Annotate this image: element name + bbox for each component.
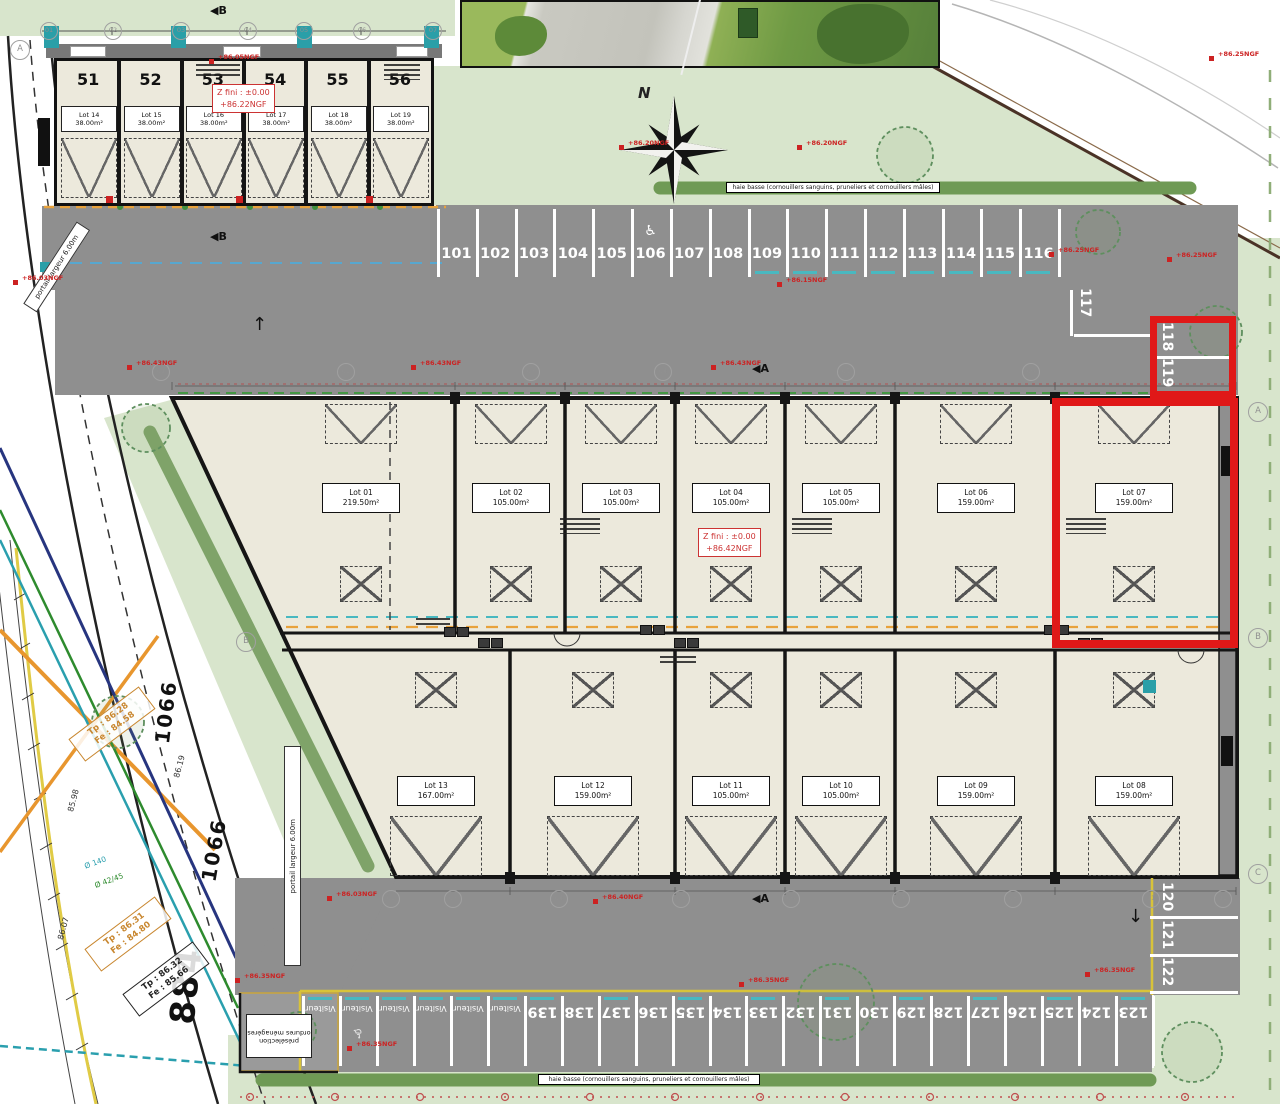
stall-number: 120 [1160, 882, 1174, 916]
garage-lot-name: Lot 15 [125, 111, 179, 119]
garage-door-swing [795, 816, 887, 876]
highlight-frame-lot-07 [1052, 398, 1238, 648]
parking-bumper [419, 997, 443, 1000]
garage-door-swing [124, 138, 180, 198]
lot-area: 105.00m² [693, 791, 769, 801]
garage-door-swing [547, 816, 639, 876]
lot-entry-door [805, 404, 877, 444]
lot-label: Lot 01219.50m² [322, 483, 400, 513]
plan-note-text [384, 64, 420, 80]
ngf-annotation-dot [13, 280, 18, 285]
stall-number: 108 [709, 247, 748, 262]
render-photo-inset [460, 0, 940, 68]
hedge-banner-top: haie basse (cornouillers sanguins, prune… [726, 182, 940, 193]
skylight-mark [955, 566, 997, 602]
garage-lot-area: 38.00m² [187, 119, 241, 127]
waste-area-label-text: présélection ordures ménagères [247, 1028, 311, 1045]
ngf-annotation: +86.35NGF [244, 972, 285, 980]
garage-door-swing [186, 138, 242, 198]
grid-row-letter: A [10, 40, 30, 60]
garage-lot-label: Lot 1838.00m² [311, 106, 367, 132]
accessible-parking-icon: ♿ [631, 224, 670, 238]
level-marker-garages: Z fini : ±0.00 +86.22NGF [212, 84, 275, 113]
grid-column-marker: 06 [353, 22, 371, 40]
garage-door-swing [930, 816, 1022, 876]
plan-note-text [660, 656, 696, 666]
plan-note-text [560, 518, 600, 534]
north-compass-icon [600, 76, 750, 226]
garage-door-number: 52 [131, 70, 171, 89]
lot-label: Lot 05105.00m² [802, 483, 880, 513]
skylight-mark [572, 672, 614, 708]
stall-number: 135 [672, 1004, 709, 1019]
stall-divider [553, 209, 556, 277]
lot-name: Lot 09 [938, 781, 1014, 791]
meter-box [457, 627, 469, 637]
lot-area: 219.50m² [323, 498, 399, 508]
stall-divider [942, 209, 945, 277]
ngf-annotation: +86.25NGF [1058, 246, 1099, 254]
ngf-annotation-dot [1167, 257, 1172, 262]
stall-number: 106 [631, 247, 670, 262]
stall-number: 129 [893, 1004, 930, 1019]
lot-name: Lot 10 [803, 781, 879, 791]
ngf-annotation: +86.05NGF [218, 53, 259, 61]
lot-name: Lot 12 [555, 781, 631, 791]
stall-number: 133 [745, 1004, 782, 1019]
garage-door-swing [373, 138, 429, 198]
stall-divider [980, 209, 983, 277]
parking-bumper [604, 997, 628, 1000]
stall-number: 117 [1078, 288, 1092, 334]
stall-divider [1074, 334, 1152, 337]
ngf-annotation: +86.20NGF [628, 139, 669, 147]
lot-entry-door [325, 404, 397, 444]
lot-label: Lot 12159.00m² [554, 776, 632, 806]
parking-bumper [899, 997, 923, 1000]
parking-bumper [910, 271, 934, 274]
garage-lot-area: 38.00m² [249, 119, 303, 127]
lot-area: 159.00m² [938, 791, 1014, 801]
parking-bumper [345, 997, 369, 1000]
grid-column-marker: 07 [892, 890, 910, 908]
render-tree-icon [817, 4, 909, 64]
stall-number: 112 [864, 247, 903, 262]
ngf-annotation-dot [127, 365, 132, 370]
lot-name: Lot 11 [693, 781, 769, 791]
parking-bumper [825, 997, 849, 1000]
ngf-annotation: +86.43NGF [136, 359, 177, 367]
section-cut-marker: ◀B [210, 230, 227, 243]
grid-column-marker: 04 [654, 363, 672, 381]
grid-column-marker: 04 [550, 890, 568, 908]
grid-column-marker: 02 [104, 22, 122, 40]
parking-bumper [308, 997, 332, 1000]
grid-row-letter: C [1248, 864, 1268, 884]
direction-arrow-icon: ↓ [1128, 908, 1143, 926]
stall-divider [1152, 996, 1155, 1066]
stall-number: 114 [942, 247, 981, 262]
ngf-annotation-dot [739, 982, 744, 987]
facade-wall-cap [560, 392, 570, 404]
lot-label: Lot 09159.00m² [937, 776, 1015, 806]
waste-area-label: présélection ordures ménagères [246, 1014, 312, 1058]
lot-name: Lot 13 [398, 781, 474, 791]
facade-wall-cap [1050, 872, 1060, 884]
gate-label-south: portail largeur 6.00m [284, 746, 301, 966]
ngf-annotation: +86.35NGF [1094, 966, 1135, 974]
garage-lot-label: Lot 1438.00m² [61, 106, 117, 132]
stall-number: 109 [748, 247, 787, 262]
stall-number: 125 [1041, 1004, 1078, 1019]
stall-number: 102 [476, 247, 515, 262]
plan-note-text [196, 64, 240, 78]
meter-box [640, 625, 652, 635]
skylight-mark [600, 566, 642, 602]
grid-column-marker: 06 [1022, 363, 1040, 381]
stall-number: 132 [782, 1004, 819, 1019]
grid-column-marker: 06 [782, 890, 800, 908]
parking-bumper [949, 271, 973, 274]
visitor-stall-label: Visiteur [413, 1004, 450, 1012]
stall-divider [515, 209, 518, 277]
parking-bumper [755, 271, 779, 274]
meter-box [674, 638, 686, 648]
lot-label: Lot 06159.00m² [937, 483, 1015, 513]
plan-note-text [792, 518, 832, 534]
stall-divider [1058, 209, 1061, 277]
garage-party-wall [304, 60, 308, 204]
hedge-banner-bottom: haie basse (cornouillers sanguins, prune… [538, 1074, 760, 1085]
stall-number: 122 [1160, 957, 1174, 991]
garage-lot-name: Lot 18 [312, 111, 366, 119]
parking-bumper [751, 997, 775, 1000]
lot-label: Lot 04105.00m² [692, 483, 770, 513]
lot-name: Lot 06 [938, 488, 1014, 498]
lot-area: 167.00m² [398, 791, 474, 801]
gate-label-text: portail largeur 6.00m [289, 819, 297, 893]
facade-wall-cap [890, 392, 900, 404]
grid-row-letter: B [1248, 628, 1268, 648]
grid-column-marker: 03 [522, 363, 540, 381]
skylight-mark [955, 672, 997, 708]
ngf-annotation: +86.15NGF [786, 276, 827, 284]
parking-bumper [382, 997, 406, 1000]
meter-box [687, 638, 699, 648]
garage-lot-area: 38.00m² [62, 119, 116, 127]
ngf-annotation-dot [619, 145, 624, 150]
meter-box [653, 625, 665, 635]
level-marker-line: Z fini : ±0.00 [703, 531, 756, 543]
skylight-mark [820, 672, 862, 708]
stall-number: 115 [980, 247, 1019, 262]
lot-label: Lot 03105.00m² [582, 483, 660, 513]
stall-number: 139 [524, 1004, 561, 1019]
ngf-annotation-dot [1085, 972, 1090, 977]
stall-divider [1070, 290, 1073, 336]
facade-wall-cap [670, 872, 680, 884]
stall-divider [437, 209, 440, 277]
stall-divider [1150, 916, 1238, 919]
stall-number: 130 [856, 1004, 893, 1019]
level-marker-line: +86.42NGF [703, 543, 756, 555]
skylight-mark [340, 566, 382, 602]
hydrant-marker [366, 196, 373, 203]
parking-bumper [832, 271, 856, 274]
render-container-icon [738, 8, 758, 38]
grid-column-marker: 12 [1214, 890, 1232, 908]
stall-number: 137 [598, 1004, 635, 1019]
stall-divider [1019, 209, 1022, 277]
grid-row-letter: A [1248, 402, 1268, 422]
visitor-stall-label: Visiteur [487, 1004, 524, 1012]
lot-area: 105.00m² [803, 791, 879, 801]
grid-column-marker: 02 [337, 363, 355, 381]
parking-bumper [871, 271, 895, 274]
skylight-mark [820, 566, 862, 602]
parking-bumper [678, 997, 702, 1000]
ngf-annotation: +86.43NGF [420, 359, 461, 367]
render-tree-icon [495, 16, 547, 56]
lot-label: Lot 11105.00m² [692, 776, 770, 806]
grid-column-marker: 05 [837, 363, 855, 381]
facade-wall-cap [505, 872, 515, 884]
level-marker-line: +86.22NGF [217, 99, 270, 111]
stall-number: 110 [786, 247, 825, 262]
lot-label: Lot 02105.00m² [472, 483, 550, 513]
skylight-mark [710, 672, 752, 708]
stall-number: 131 [819, 1004, 856, 1019]
ngf-annotation-dot [411, 365, 416, 370]
garage-roof-tag [70, 46, 106, 57]
skylight-mark [415, 672, 457, 708]
lot-area: 105.00m² [693, 498, 769, 508]
grid-column-marker: 02 [382, 890, 400, 908]
garage-lot-name: Lot 14 [62, 111, 116, 119]
ngf-annotation: +86.03NGF [22, 274, 63, 282]
ngf-annotation: +86.03NGF [336, 890, 377, 898]
garage-lot-area: 38.00m² [125, 119, 179, 127]
garage-party-wall [180, 60, 184, 204]
ngf-annotation: +86.35NGF [748, 976, 789, 984]
garage-party-wall [117, 60, 121, 204]
level-marker-building: Z fini : ±0.00 +86.42NGF [698, 528, 761, 557]
grid-column-marker: 04 [239, 22, 257, 40]
ngf-annotation: +86.40NGF [602, 893, 643, 901]
garage-door-swing [390, 816, 482, 876]
grid-column-marker: 05 [672, 890, 690, 908]
meter-box [491, 638, 503, 648]
ngf-annotation-dot [711, 365, 716, 370]
stall-number: 107 [670, 247, 709, 262]
stall-number: 124 [1078, 1004, 1115, 1019]
direction-arrow-icon: ↑ [252, 316, 267, 334]
stall-number: 134 [709, 1004, 746, 1019]
garage-door-swing [248, 138, 304, 198]
hydrant-marker [236, 196, 243, 203]
ngf-annotation-dot [347, 1046, 352, 1051]
garage-party-wall [367, 60, 371, 204]
garage-lot-name: Lot 19 [374, 111, 428, 119]
grid-column-marker: 05 [295, 22, 313, 40]
parking-bumper [973, 997, 997, 1000]
stall-number: 136 [635, 1004, 672, 1019]
meter-box [478, 638, 490, 648]
lot-area: 105.00m² [473, 498, 549, 508]
stall-number: 113 [903, 247, 942, 262]
stall-divider [864, 209, 867, 277]
compass-north-label: N [638, 84, 651, 102]
garage-door-swing [685, 816, 777, 876]
lot-area: 159.00m² [555, 791, 631, 801]
grid-column-marker: 03 [172, 22, 190, 40]
lot-label: Lot 08159.00m² [1095, 776, 1173, 806]
parking-bumper [1121, 997, 1145, 1000]
stall-divider [825, 209, 828, 277]
parking-bumper [456, 997, 480, 1000]
visitor-stall-label: Visiteur [376, 1004, 413, 1012]
garage-lot-label: Lot 1538.00m² [124, 106, 180, 132]
ngf-annotation-dot [327, 896, 332, 901]
stall-divider [903, 209, 906, 277]
stall-divider [592, 209, 595, 277]
lot-entry-door [940, 404, 1012, 444]
lot-name: Lot 01 [323, 488, 399, 498]
stall-number: 105 [592, 247, 631, 262]
accessible-parking-icon: ♿ [339, 1026, 376, 1039]
ngf-annotation-dot [777, 282, 782, 287]
render-road-marking [681, 0, 702, 75]
stall-number: 121 [1160, 920, 1174, 954]
stall-number: 103 [515, 247, 554, 262]
column-marker [1143, 680, 1156, 693]
ngf-annotation: +86.35NGF [356, 1040, 397, 1048]
stall-number: 126 [1004, 1004, 1041, 1019]
lot-entry-door [475, 404, 547, 444]
grid-column-marker: 07 [424, 22, 442, 40]
stall-number: 127 [967, 1004, 1004, 1019]
grid-column-marker: 11 [1142, 890, 1160, 908]
facade-wall-cap [670, 392, 680, 404]
stall-number: 101 [437, 247, 476, 262]
wall-tag [38, 118, 50, 166]
stall-number: 111 [825, 247, 864, 262]
lot-area: 159.00m² [938, 498, 1014, 508]
garage-door-number: 51 [68, 70, 108, 89]
lot-area: 105.00m² [803, 498, 879, 508]
hydrant-marker [106, 196, 113, 203]
lot-entry-door [695, 404, 767, 444]
wall-tag [1221, 736, 1233, 766]
garage-party-wall [242, 60, 246, 204]
garage-door-swing [311, 138, 367, 198]
lot-label: Lot 13167.00m² [397, 776, 475, 806]
ngf-annotation-dot [797, 145, 802, 150]
lot-name: Lot 02 [473, 488, 549, 498]
garage-door-number: 55 [318, 70, 358, 89]
parking-bumper [493, 997, 517, 1000]
skylight-mark [490, 566, 532, 602]
ngf-annotation: +86.25NGF [1176, 251, 1217, 259]
visitor-stall-label: Visiteur [339, 1004, 376, 1012]
section-cut-marker: ◀A [752, 892, 769, 905]
visitor-stall-label: Visiteur [450, 1004, 487, 1012]
ngf-annotation: +86.43NGF [720, 359, 761, 367]
parking-bumper [793, 271, 817, 274]
lot-name: Lot 03 [583, 488, 659, 498]
grid-row-letter: B [236, 632, 256, 652]
ngf-annotation-dot [1209, 56, 1214, 61]
garage-lot-area: 38.00m² [312, 119, 366, 127]
facade-wall-cap [780, 392, 790, 404]
stall-number: 104 [553, 247, 592, 262]
parking-bumper [530, 997, 554, 1000]
stall-divider [1150, 991, 1238, 994]
grid-column-marker: 08 [1004, 890, 1022, 908]
level-marker-line: Z fini : ±0.00 [217, 87, 270, 99]
parking-bumper [1047, 997, 1071, 1000]
lot-area: 105.00m² [583, 498, 659, 508]
garage-door-swing [61, 138, 117, 198]
lot-name: Lot 05 [803, 488, 879, 498]
ngf-annotation: +86.20NGF [806, 139, 847, 147]
lot-area: 159.00m² [1096, 791, 1172, 801]
skylight-mark [710, 566, 752, 602]
stall-number: 138 [561, 1004, 598, 1019]
ngf-annotation-dot [593, 899, 598, 904]
lot-label: Lot 10105.00m² [802, 776, 880, 806]
parking-bumper [1026, 271, 1050, 274]
ngf-annotation: +86.25NGF [1218, 50, 1259, 58]
ngf-annotation-dot [1049, 252, 1054, 257]
lot-name: Lot 04 [693, 488, 769, 498]
garage-lot-area: 38.00m² [374, 119, 428, 127]
ngf-annotation-dot [209, 59, 214, 64]
facade-wall-cap [450, 392, 460, 404]
garage-door-swing [1088, 816, 1180, 876]
section-cut-marker: ◀B [210, 4, 227, 17]
lot-name: Lot 08 [1096, 781, 1172, 791]
stall-divider [786, 209, 789, 277]
grid-column-marker: 01 [40, 22, 58, 40]
meter-box [444, 627, 456, 637]
grid-column-marker: 03 [444, 890, 462, 908]
stall-divider [476, 209, 479, 277]
stall-number: 123 [1115, 1004, 1152, 1019]
site-plan-canvas: N haie basse (cornouillers sanguins, pru… [0, 0, 1280, 1104]
parking-bumper [987, 271, 1011, 274]
visitor-stall-label: Visiteur [302, 1004, 339, 1012]
facade-wall-cap [780, 872, 790, 884]
facade-wall-cap [890, 872, 900, 884]
ngf-annotation-dot [235, 978, 240, 983]
garage-lot-label: Lot 1938.00m² [373, 106, 429, 132]
lot-entry-door [585, 404, 657, 444]
highlight-frame-stalls-118-119 [1150, 316, 1236, 398]
stall-number: 128 [930, 1004, 967, 1019]
